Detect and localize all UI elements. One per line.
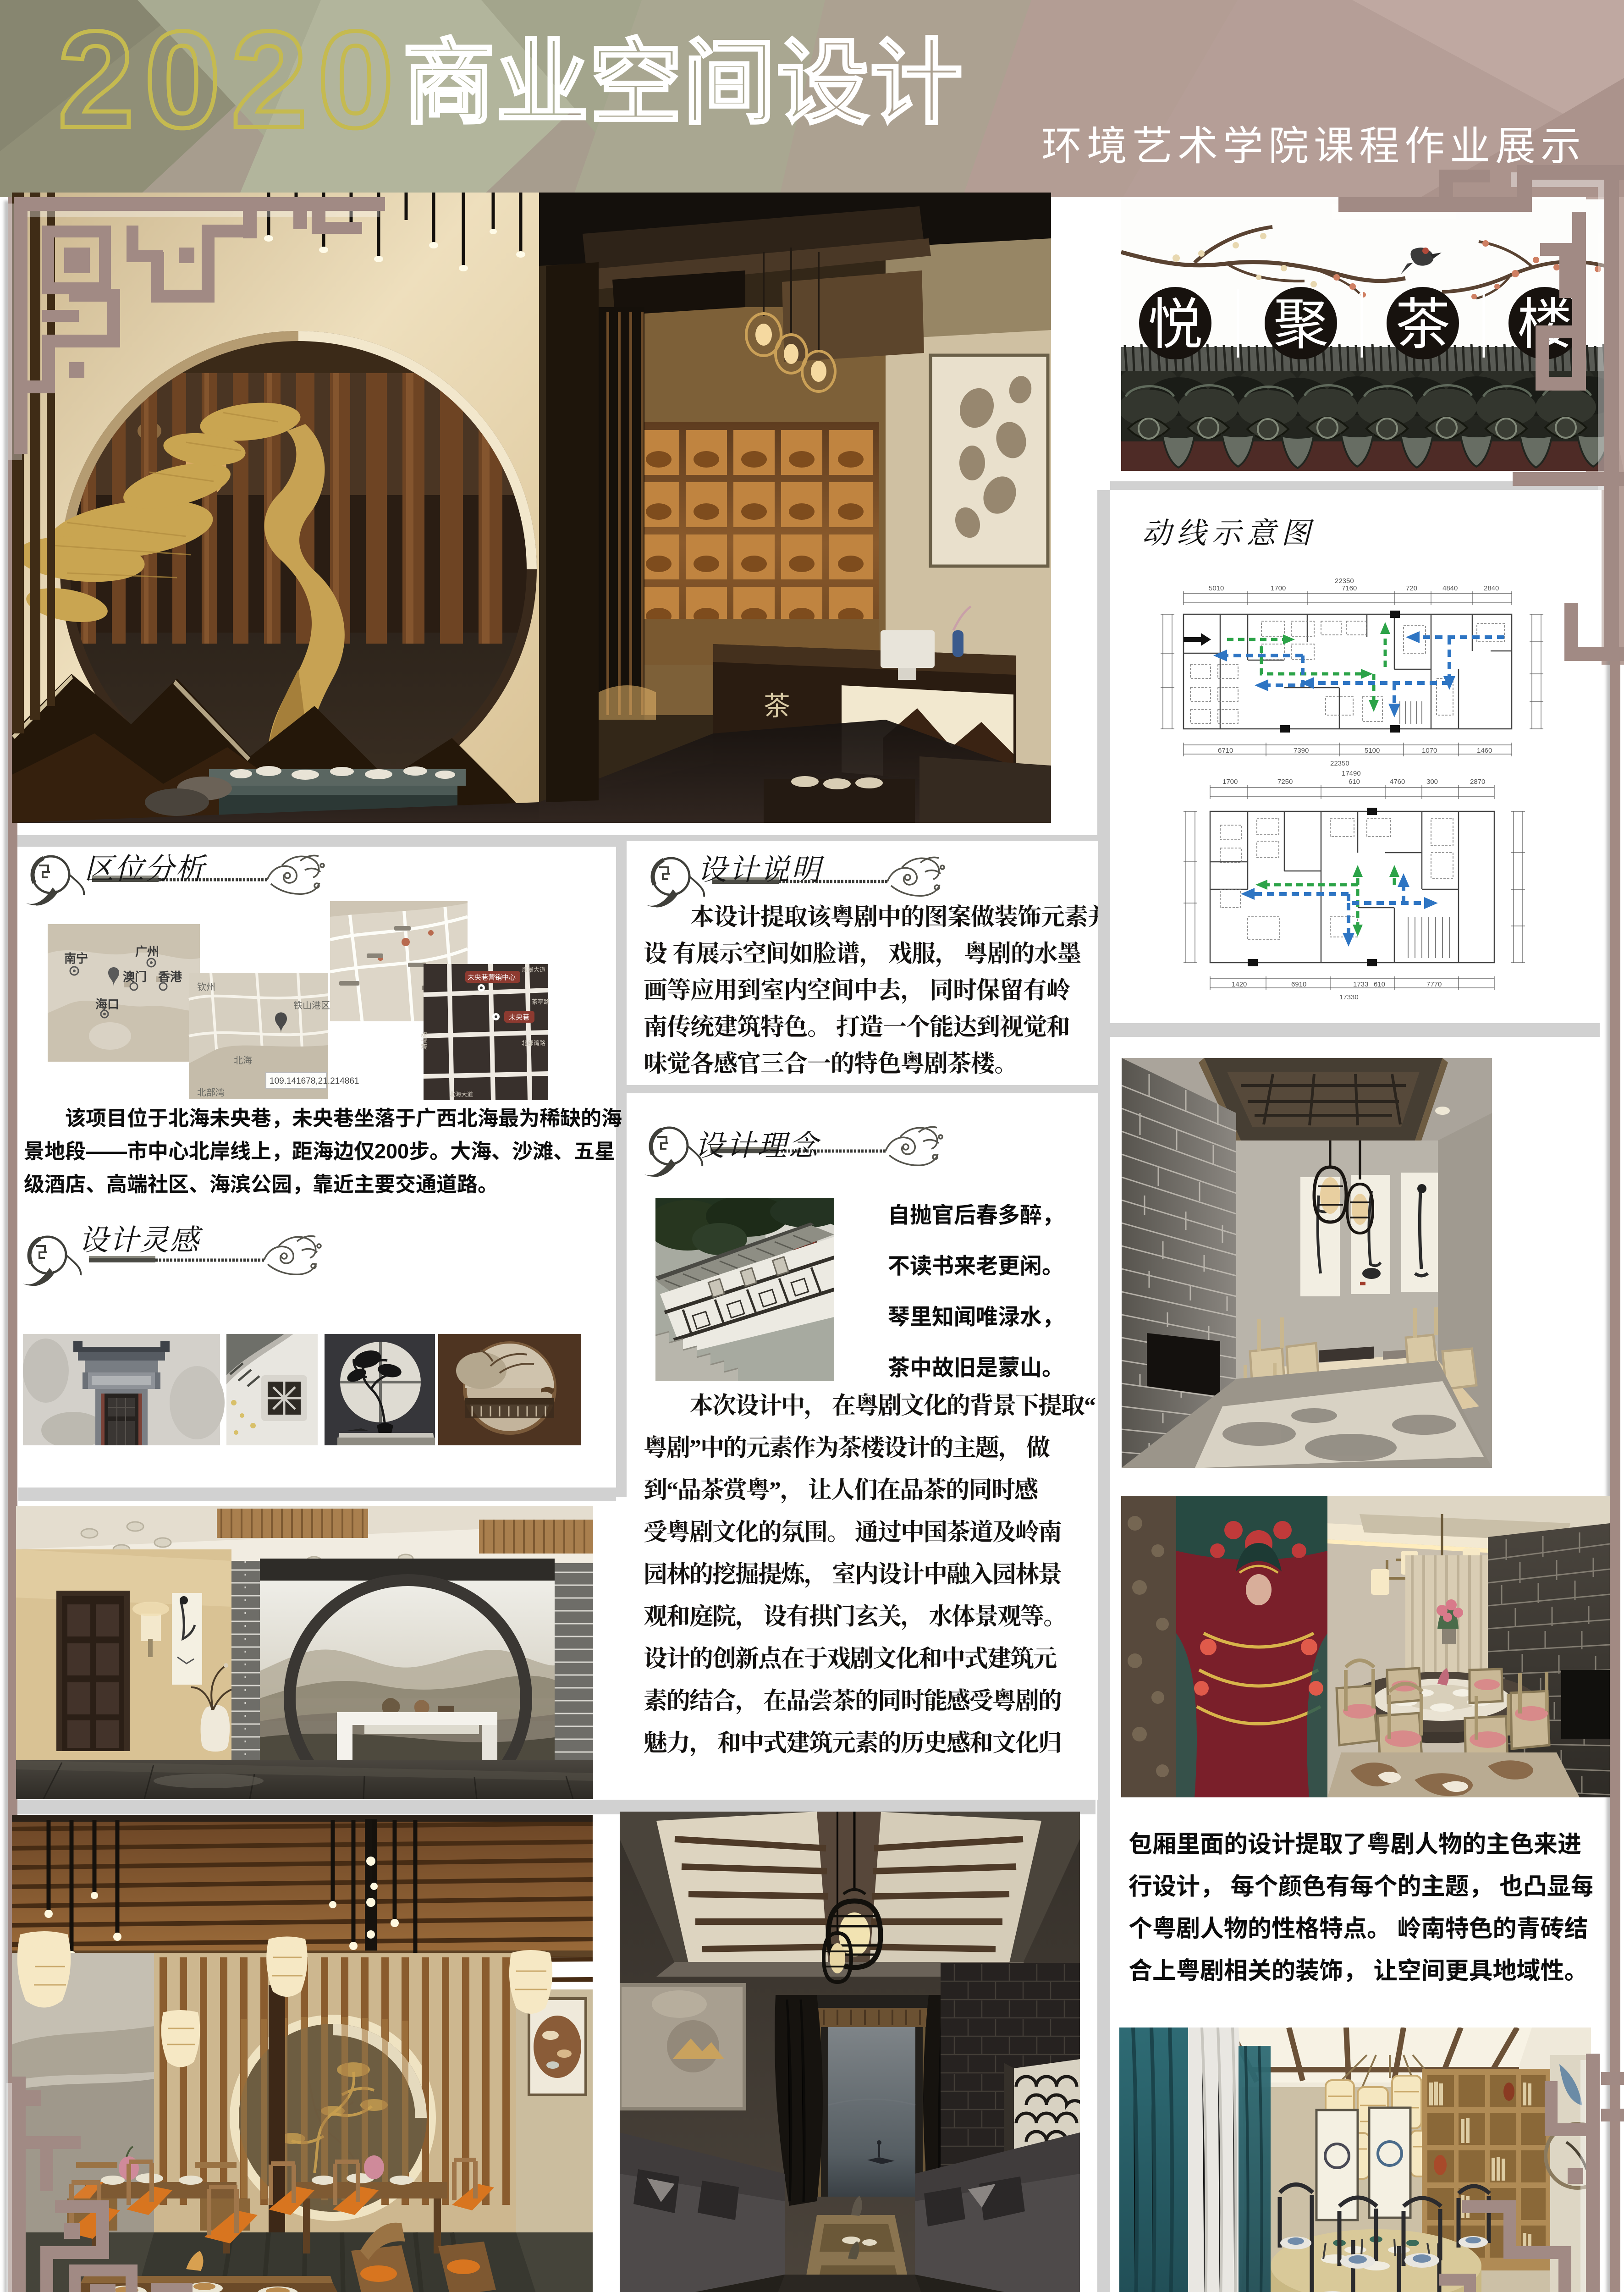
svg-text:6710: 6710 [1218,747,1233,755]
svg-text:北海大道: 北海大道 [449,1091,473,1098]
svg-text:5100: 5100 [1365,747,1380,755]
svg-text:北海: 北海 [234,1055,252,1066]
svg-text:聚: 聚 [1273,294,1328,355]
svg-text:南宁: 南宁 [64,952,88,965]
svg-text:7390: 7390 [1294,747,1309,755]
svg-text:北部湾: 北部湾 [197,1087,225,1098]
svg-text:茶亭路: 茶亭路 [532,998,550,1005]
svg-text:海景大道: 海景大道 [522,966,545,973]
svg-text:澳门: 澳门 [123,970,147,984]
svg-text:1070: 1070 [1422,747,1437,755]
svg-text:湖南路: 湖南路 [421,1032,428,1050]
svg-text:7250: 7250 [1277,778,1293,786]
svg-text:2870: 2870 [1470,778,1485,786]
svg-text:4760: 4760 [1390,778,1405,786]
svg-text:香港: 香港 [158,970,182,984]
svg-text:1700: 1700 [1271,584,1286,592]
svg-text:300: 300 [1426,778,1438,786]
svg-text:茶: 茶 [764,691,790,721]
svg-text:钦州: 钦州 [197,982,215,992]
svg-text:17490: 17490 [1342,770,1361,777]
svg-text:5010: 5010 [1209,584,1224,592]
svg-text:未央巷: 未央巷 [509,1014,529,1021]
svg-text:1700: 1700 [1222,778,1238,786]
svg-text:未央巷营销中心: 未央巷营销中心 [468,974,516,981]
svg-text:7770: 7770 [1426,981,1442,988]
svg-text:铁山港区: 铁山港区 [293,1000,330,1011]
svg-text:6910: 6910 [1291,981,1306,988]
svg-text:17330: 17330 [1339,993,1359,1001]
svg-text:北部湾路: 北部湾路 [522,1040,545,1047]
svg-text:悦: 悦 [1148,294,1203,355]
svg-text:广州: 广州 [135,945,159,959]
svg-text:610: 610 [1374,981,1385,988]
svg-text:1460: 1460 [1477,747,1492,755]
svg-text:1733: 1733 [1353,981,1368,988]
svg-text:海口: 海口 [95,997,119,1011]
svg-text:22350: 22350 [1330,760,1349,767]
svg-text:610: 610 [1349,778,1360,786]
svg-text:109.141678,21.214861: 109.141678,21.214861 [270,1076,359,1086]
svg-text:1420: 1420 [1232,981,1247,988]
